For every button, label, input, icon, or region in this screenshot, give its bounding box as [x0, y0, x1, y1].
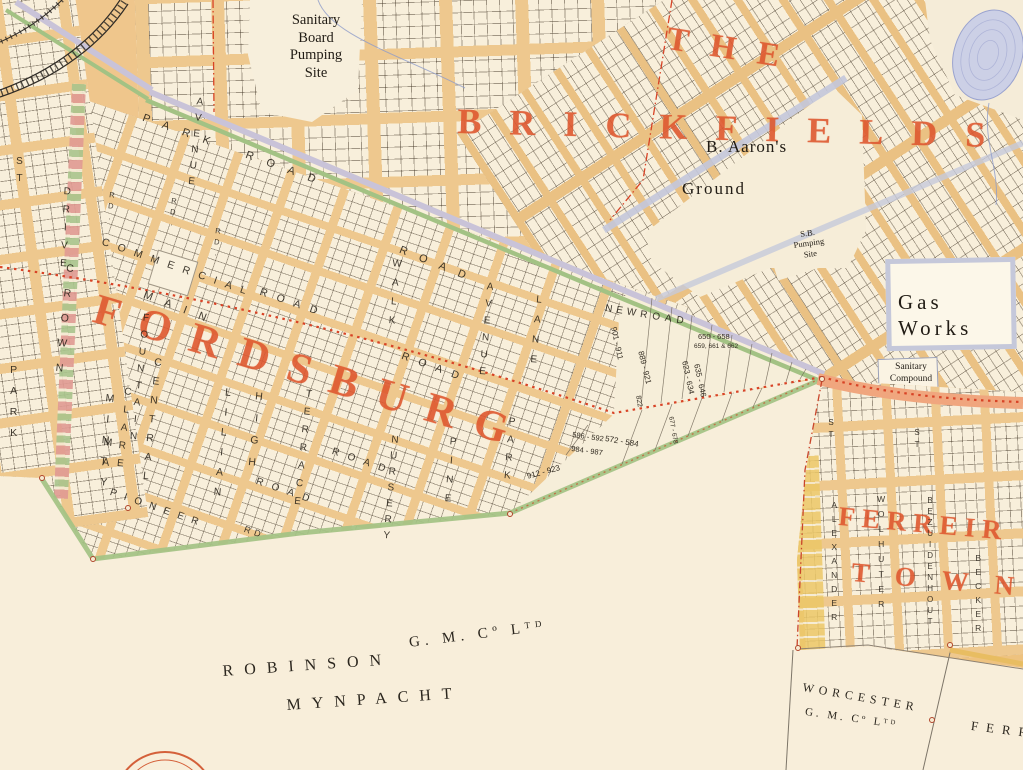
worcester-gmco-ltd: G. M. Cº Lᵀᴰ: [804, 706, 899, 732]
mynpacht: MYNPACHT: [286, 684, 463, 715]
plots-912-923: 912 - 923: [526, 463, 561, 481]
bezuidenhout-street: BEZUIDENHOUT: [925, 496, 935, 628]
st-abbrev-1: ST: [826, 418, 836, 442]
avenue-road-east: AVENUE: [475, 281, 496, 384]
crown-road: CROWN: [51, 262, 77, 388]
ferreira-partial: FERR: [970, 718, 1023, 741]
plots-586-592: 586 - 592: [572, 430, 605, 443]
robinson-gmco-ltd: G. M. Cº Lᵀᴰ: [408, 617, 548, 652]
robinson: ROBINSON: [222, 650, 393, 681]
rd-abbrev-3: RD.: [105, 190, 117, 224]
lilian-road: LILIAN: [209, 386, 234, 507]
nursery-road: NURSERY: [379, 434, 401, 547]
new-road-word1: NEW: [604, 303, 641, 320]
road-label-1: ROAD: [397, 244, 480, 288]
plots-889-921: 889 - 921: [636, 350, 653, 385]
rd-abbrev-1: RD.: [167, 196, 179, 230]
gas-works: Gas Works: [898, 290, 1023, 341]
plots-901-911: 901 - 911: [609, 326, 625, 360]
pine-road: PINE: [440, 436, 459, 513]
commercial-road-word2: ROAD: [258, 286, 329, 321]
rd-abbrev-2: RD.: [211, 226, 223, 260]
walk-road: WALK: [384, 258, 403, 335]
plots-984-987: 984 - 987: [571, 444, 604, 457]
sb-pumping-site: S.B. Pumping Site: [778, 224, 840, 263]
sanitary-board-pumping-site: Sanitary Board Pumping Site: [268, 12, 364, 83]
b-aarons: B. Aaron's: [706, 137, 787, 158]
wolhuter-street: WOLHUTER: [876, 494, 886, 614]
b-aarons-ground: Ground: [682, 179, 746, 200]
lane: LANE: [526, 294, 545, 375]
plots-572-584: 572 - 584: [604, 434, 639, 449]
park-road-west: PARK: [7, 364, 20, 448]
alexander-street: ALEXANDER: [829, 500, 839, 626]
st-abbrev-2: ST: [912, 428, 922, 452]
park-road-word1: PARK: [140, 112, 225, 154]
plot-822: 822: [633, 395, 643, 408]
plots-659-661-662: 659, 661 & 662: [694, 343, 738, 351]
road-label-3: ROAD: [254, 476, 319, 508]
district-the: THE: [664, 20, 804, 80]
map-canvas[interactable]: THEBRICKFIELDSFORDSBURGFERREIRTOWNSanita…: [0, 0, 1023, 770]
labels-layer: THEBRICKFIELDSFORDSBURGFERREIRTOWNSanita…: [0, 0, 1023, 770]
plots-677-678: 677 - 678: [666, 416, 678, 444]
park-road-word2: ROAD: [243, 149, 330, 191]
pioneer-road-word1: PIONEER: [108, 487, 207, 531]
district-ferreiras-town-line1: FERREIR: [837, 500, 1010, 547]
pioneer-road-word2: RD: [242, 524, 265, 541]
street-west: ST: [13, 156, 25, 190]
becker-street: BECKER: [973, 553, 983, 637]
new-road-word2: ROAD: [639, 309, 689, 329]
plots-650-658: 650 - 658: [698, 332, 730, 341]
sanitary-compound: Sanitary Compound: [884, 362, 938, 385]
high-road: HIGH: [244, 390, 266, 479]
